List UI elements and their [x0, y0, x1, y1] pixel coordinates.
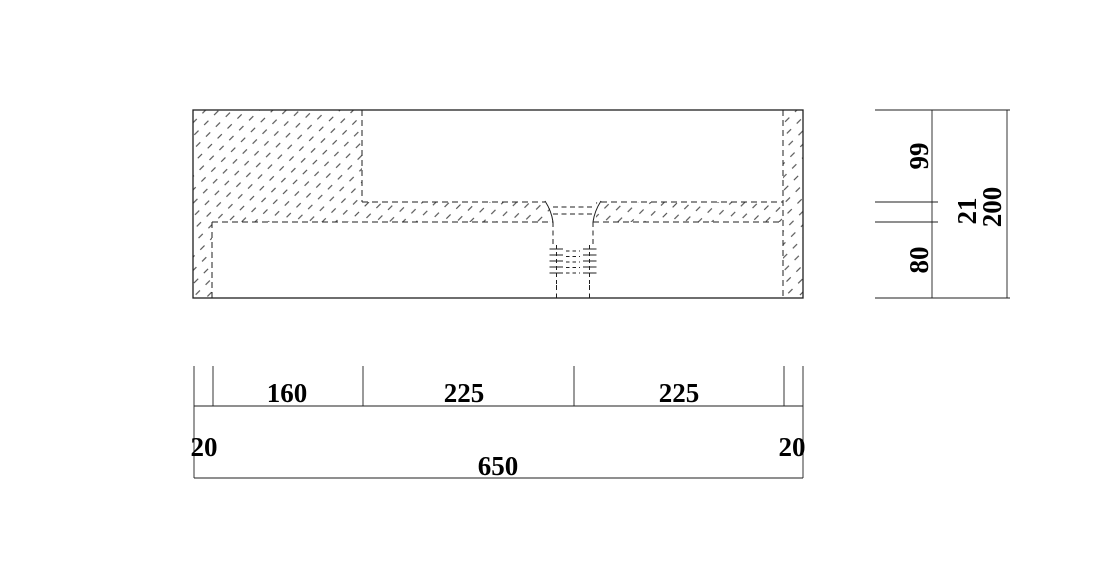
- dim-label-80: 80: [904, 247, 934, 274]
- dim-label-99: 99: [904, 143, 934, 170]
- thread-core-dashes: [566, 251, 580, 273]
- drawing-canvas: 99 21 200 80 160 225 225 20 20 650: [0, 0, 1112, 568]
- section-view: [193, 110, 803, 298]
- right-wall: [783, 110, 803, 298]
- dim-label-160: 160: [267, 378, 308, 408]
- floor-strip-left: [362, 202, 550, 222]
- dim-label-20-right: 20: [779, 432, 806, 462]
- floor-strip-right: [596, 202, 783, 222]
- drain-fitting: [545, 201, 601, 298]
- dim-label-20-left: 20: [191, 432, 218, 462]
- cross-section-drawing: 99 21 200 80 160 225 225 20 20 650: [0, 0, 1112, 568]
- solid-block-left: [193, 110, 362, 222]
- dim-label-225-left: 225: [444, 378, 485, 408]
- dim-label-200: 200: [977, 187, 1007, 228]
- left-wall: [193, 222, 212, 298]
- right-dimension-labels: 99 21 200 80: [904, 143, 1007, 274]
- dim-label-650: 650: [478, 451, 519, 481]
- dim-label-225-right: 225: [659, 378, 700, 408]
- bottom-dimension-labels: 160 225 225 20 20 650: [191, 378, 806, 481]
